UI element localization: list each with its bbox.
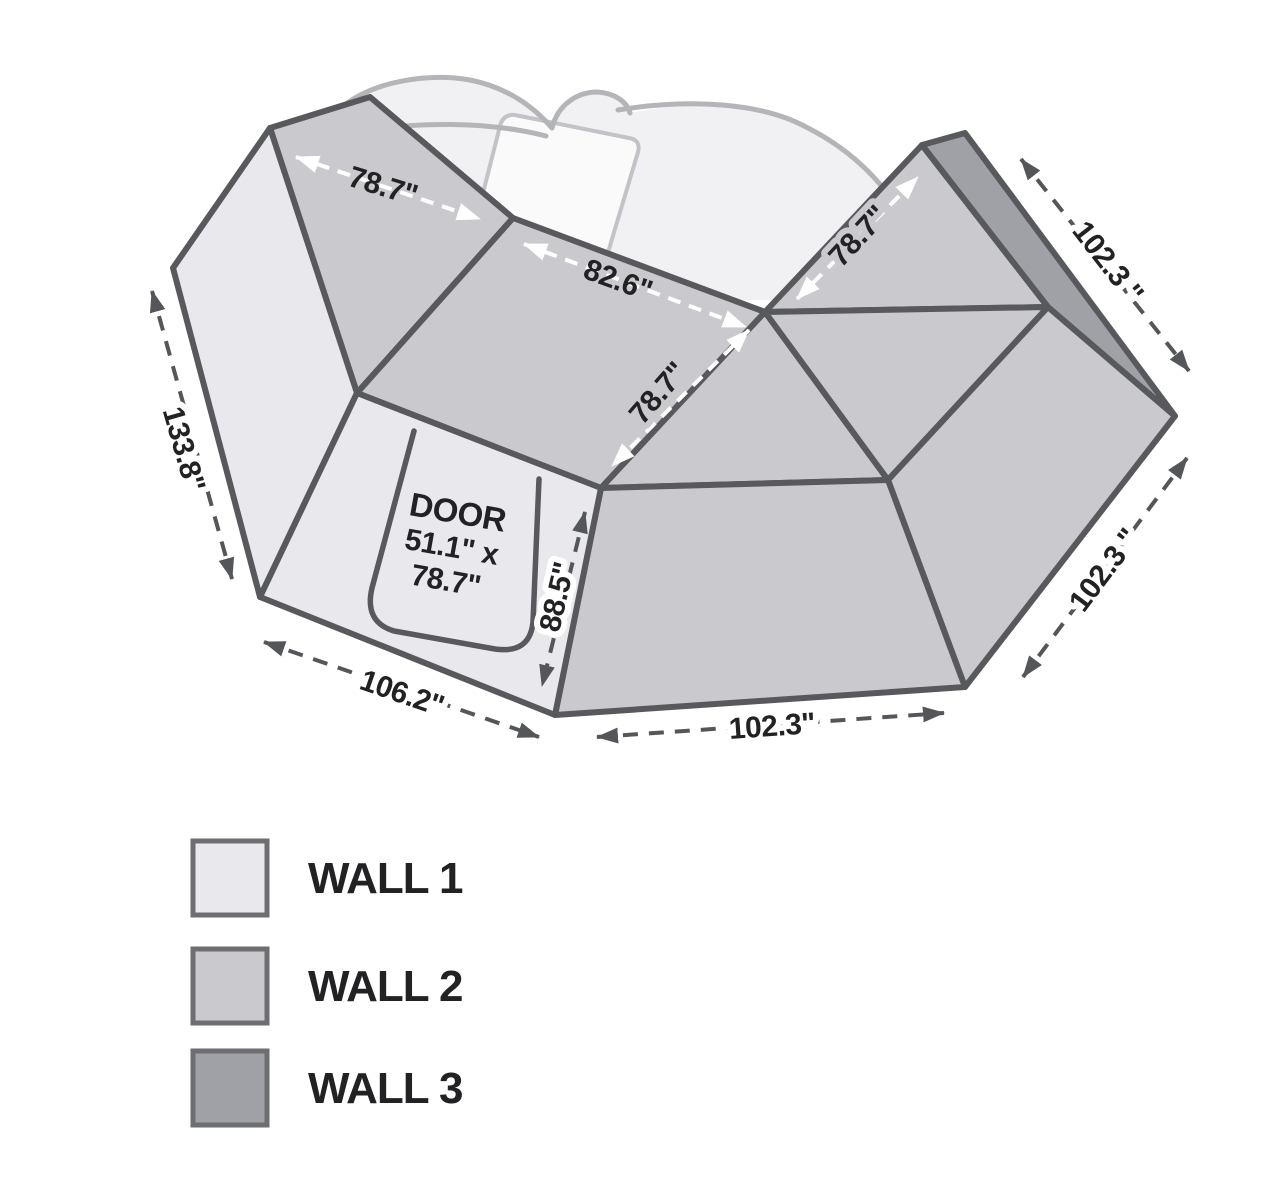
awning-dimensions-page: 78.7" 82.6" 78.7" 78.7" 102.3 " 133.8" 1…: [0, 0, 1280, 1190]
dim-label-left-height: 133.8": [156, 403, 212, 495]
legend-item-wall3: WALL 3: [193, 1051, 463, 1125]
dim-label-bottom-mid: 102.3": [728, 707, 816, 746]
legend-label-wall3: WALL 3: [308, 1064, 463, 1113]
legend-label-wall2: WALL 2: [308, 962, 463, 1011]
legend: WALL 1 WALL 2 WALL 3: [193, 841, 463, 1125]
legend-label-wall1: WALL 1: [308, 854, 463, 903]
awning-dimensions-diagram: 78.7" 82.6" 78.7" 78.7" 102.3 " 133.8" 1…: [0, 0, 1280, 1190]
legend-item-wall2: WALL 2: [193, 949, 463, 1023]
legend-swatch-wall1: [193, 841, 267, 915]
legend-item-wall1: WALL 1: [193, 841, 463, 915]
legend-swatch-wall3: [193, 1051, 267, 1125]
dim-label-bottom-left: 106.2": [356, 664, 448, 723]
legend-swatch-wall2: [193, 949, 267, 1023]
wall-panel-bottom-mid: [555, 480, 965, 715]
